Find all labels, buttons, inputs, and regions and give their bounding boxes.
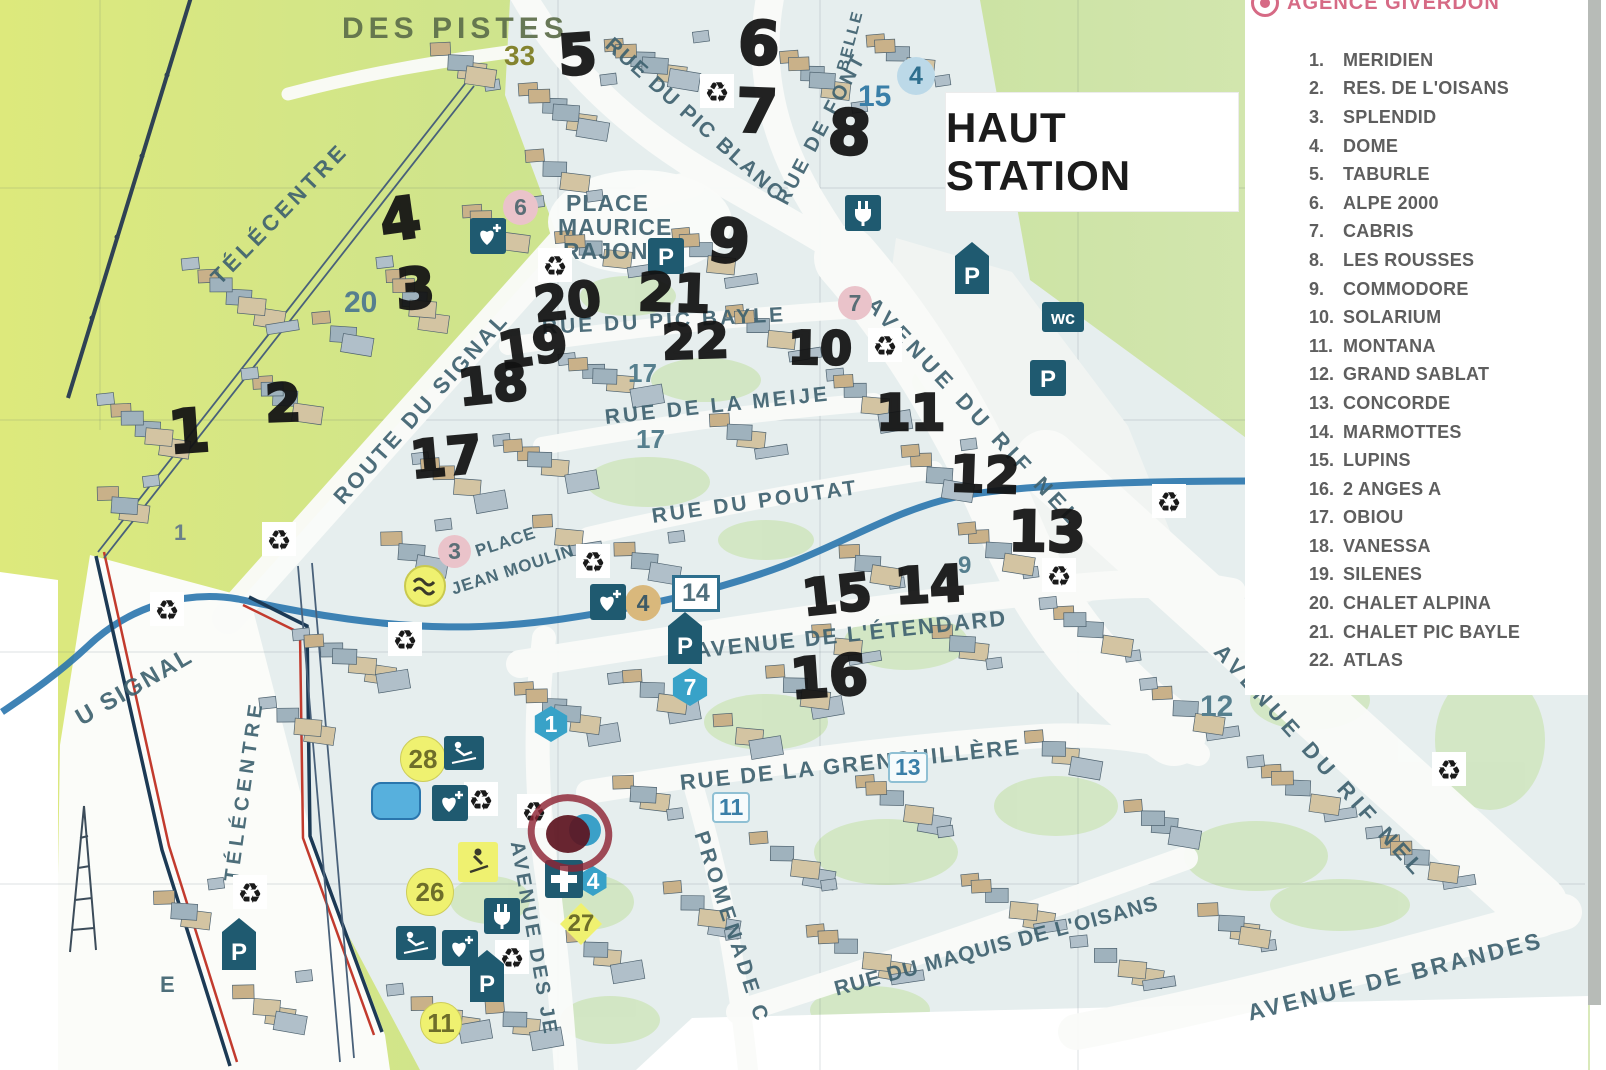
recycle-icon: ♻: [700, 74, 734, 113]
agency-target-logo-icon: [1251, 0, 1279, 17]
legend-item: 10.SOLARIUM: [1309, 303, 1520, 332]
handwritten-number: 2: [264, 377, 302, 430]
legend-item-name: CONCORDE: [1343, 393, 1450, 414]
legend-item-number: 14.: [1309, 422, 1343, 443]
map-ref-number: 17: [636, 424, 665, 455]
map-ref-number: 11: [420, 1002, 462, 1044]
legend-item: 2.RES. DE L'OISANS: [1309, 75, 1520, 104]
legend-item-name: MERIDIEN: [1343, 50, 1433, 71]
svg-text:P: P: [231, 939, 247, 966]
map-ref-number: 33: [504, 40, 535, 72]
parking-pillar-icon: P: [222, 918, 256, 977]
legend-item-name: TABURLE: [1343, 164, 1430, 185]
parking-pillar-icon: P: [955, 242, 989, 301]
legend-item-name: CHALET ALPINA: [1343, 593, 1491, 614]
recycle-icon: ♻: [150, 592, 184, 631]
map-ref-number: 4: [897, 57, 935, 95]
legend-item: 21.CHALET PIC BAYLE: [1309, 618, 1520, 647]
map-ref-number: 20: [344, 286, 377, 320]
legend-item-number: 6.: [1309, 193, 1343, 214]
parking-icon: P: [1030, 360, 1066, 401]
recycle-icon: ♻: [233, 875, 267, 914]
legend-item: 5.TABURLE: [1309, 160, 1520, 189]
parking-pillar-icon: P: [668, 612, 702, 671]
handwritten-number: 9: [705, 210, 752, 273]
handwritten-number: 13: [1008, 504, 1087, 561]
map-ref-number: 7: [838, 286, 872, 320]
handwritten-number: 11: [876, 388, 946, 438]
svg-text:♻: ♻: [1156, 486, 1181, 518]
svg-text:♻: ♻: [468, 784, 493, 816]
map-ref-number: 1: [174, 520, 186, 546]
legend-item-name: VANESSA: [1343, 536, 1431, 557]
map-ref-number: 17: [628, 358, 657, 389]
street-label: RAJON: [563, 238, 649, 265]
legend-item: 8.LES ROUSSES: [1309, 246, 1520, 275]
legend-item-number: 18.: [1309, 536, 1343, 557]
legend-item-name: RES. DE L'OISANS: [1343, 78, 1509, 99]
legend-item: 12.GRAND SABLAT: [1309, 361, 1520, 390]
plug-icon: [484, 898, 520, 939]
legend-item-number: 3.: [1309, 107, 1343, 128]
handwritten-number: 5: [556, 27, 599, 86]
map-ref-number: 6: [503, 190, 538, 225]
svg-text:♻: ♻: [872, 330, 897, 362]
legend-item-name: LES ROUSSES: [1343, 250, 1474, 271]
svg-text:P: P: [1040, 366, 1056, 393]
legend-item-name: SILENES: [1343, 564, 1422, 585]
street-label: PLACE: [566, 190, 649, 217]
legend-item-name: CHALET PIC BAYLE: [1343, 622, 1520, 643]
heart-icon: [442, 930, 478, 971]
plug-icon: [845, 195, 881, 236]
legend-item-name: MONTANA: [1343, 336, 1436, 357]
legend-item-number: 22.: [1309, 650, 1343, 671]
recycle-icon: ♻: [1152, 484, 1186, 523]
legend-item-name: ALPE 2000: [1343, 193, 1439, 214]
legend-item-number: 11.: [1309, 336, 1343, 357]
handwritten-number: 7: [735, 81, 779, 142]
svg-text:♻: ♻: [237, 877, 262, 909]
legend-list: 1.MERIDIEN2.RES. DE L'OISANS3.SPLENDID4.…: [1309, 46, 1520, 675]
svg-text:♻: ♻: [1436, 754, 1461, 786]
legend-item-name: DOME: [1343, 136, 1398, 157]
legend-item-name: LUPINS: [1343, 450, 1411, 471]
legend-item: 18.VANESSA: [1309, 532, 1520, 561]
wave-icon: [404, 565, 446, 612]
agency-name: AGENCE GIVERDON: [1287, 0, 1500, 15]
legend-item: 15.LUPINS: [1309, 446, 1520, 475]
legend-item-number: 1.: [1309, 50, 1343, 71]
handwritten-number: 15: [800, 566, 874, 623]
legend-item-number: 20.: [1309, 593, 1343, 614]
handwritten-number: 12: [949, 449, 1020, 501]
legend-item: 3.SPLENDID: [1309, 103, 1520, 132]
agency-header: AGENCE GIVERDON: [1251, 0, 1500, 17]
skier-icon: [396, 926, 436, 965]
svg-text:♻: ♻: [392, 624, 417, 656]
jump-icon: [458, 842, 498, 887]
legend-item-number: 4.: [1309, 136, 1343, 157]
recycle-icon: ♻: [1432, 752, 1466, 791]
legend-item-name: MARMOTTES: [1343, 422, 1462, 443]
legend-item-name: OBIOU: [1343, 507, 1404, 528]
svg-text:♻: ♻: [580, 546, 605, 578]
handwritten-number: 1: [166, 401, 212, 464]
recycle-icon: ♻: [464, 782, 498, 821]
legend-item-name: CABRIS: [1343, 221, 1414, 242]
recycle-icon: ♻: [262, 522, 296, 561]
handwritten-number: 6: [736, 13, 781, 75]
scan-edge: [1588, 0, 1601, 1005]
legend-item-number: 2.: [1309, 78, 1343, 99]
svg-text:♻: ♻: [704, 76, 729, 108]
recycle-icon: ♻: [388, 622, 422, 661]
legend-item-number: 9.: [1309, 279, 1343, 300]
street-label: MAURICE: [558, 214, 672, 241]
handwritten-number: 14: [894, 558, 966, 612]
wc-icon: wc: [1042, 302, 1084, 337]
legend-item: 22.ATLAS: [1309, 646, 1520, 675]
legend-item: 6.ALPE 2000: [1309, 189, 1520, 218]
svg-text:P: P: [479, 971, 495, 998]
legend-item: 7.CABRIS: [1309, 218, 1520, 247]
svg-text:wc: wc: [1050, 308, 1075, 328]
legend-item-number: 7.: [1309, 221, 1343, 242]
handwritten-number: 17: [408, 429, 485, 487]
svg-text:♻: ♻: [266, 524, 291, 556]
legend-item-name: SOLARIUM: [1343, 307, 1441, 328]
legend-item: 16.2 ANGES A: [1309, 475, 1520, 504]
legend-item: 9.COMMODORE: [1309, 275, 1520, 304]
map-ref-number: 28: [400, 736, 446, 782]
legend-item: 17.OBIOU: [1309, 504, 1520, 533]
map-title-box: HAUT STATION: [945, 92, 1239, 212]
legend-item-number: 21.: [1309, 622, 1343, 643]
legend-panel: AGENCE GIVERDON 1.MERIDIEN2.RES. DE L'OI…: [1245, 0, 1590, 695]
legend-item: 19.SILENES: [1309, 561, 1520, 590]
legend-item-number: 17.: [1309, 507, 1343, 528]
legend-item: 20.CHALET ALPINA: [1309, 589, 1520, 618]
legend-item-number: 13.: [1309, 393, 1343, 414]
legend-item-name: ATLAS: [1343, 650, 1403, 671]
map-ref-number: 11: [712, 792, 750, 823]
svg-text:P: P: [964, 263, 980, 290]
legend-item-number: 16.: [1309, 479, 1343, 500]
skier-icon: [444, 736, 484, 775]
map-ref-number: 3: [438, 535, 471, 568]
scanned-resort-map: DES PISTESTÉLÉCENTRETÉLÉCENTRERUE DU PIC…: [0, 0, 1606, 1070]
heart-icon: [590, 584, 626, 625]
legend-item: 14.MARMOTTES: [1309, 418, 1520, 447]
handwritten-number: 4: [376, 187, 424, 250]
heart-icon: [432, 785, 468, 826]
legend-item-name: SPLENDID: [1343, 107, 1436, 128]
legend-item-number: 8.: [1309, 250, 1343, 271]
heart-icon: [470, 218, 506, 259]
map-ref-number: 12: [1200, 690, 1233, 724]
map-ref-number: 14: [672, 575, 720, 612]
handwritten-number: 8: [826, 101, 873, 166]
legend-item: 13.CONCORDE: [1309, 389, 1520, 418]
handwritten-number: 20: [532, 275, 603, 330]
legend-item-number: 5.: [1309, 164, 1343, 185]
recycle-icon: ♻: [576, 544, 610, 583]
handwritten-number: 3: [395, 261, 437, 319]
legend-item-number: 19.: [1309, 564, 1343, 585]
handwritten-number: 16: [788, 647, 870, 708]
handwritten-number: 10: [788, 324, 853, 371]
map-ref-number: 26: [406, 868, 454, 916]
street-label: E: [160, 972, 175, 998]
svg-text:♻: ♻: [154, 594, 179, 626]
map-title: HAUT STATION: [946, 104, 1238, 200]
legend-item-number: 12.: [1309, 364, 1343, 385]
svg-text:P: P: [677, 633, 693, 660]
legend-item-name: COMMODORE: [1343, 279, 1469, 300]
legend-item-number: 15.: [1309, 450, 1343, 471]
legend-item-name: 2 ANGES A: [1343, 479, 1441, 500]
legend-item-number: 10.: [1309, 307, 1343, 328]
legend-item: 11.MONTANA: [1309, 332, 1520, 361]
map-ref-number: 4: [625, 585, 661, 621]
legend-item-name: GRAND SABLAT: [1343, 364, 1489, 385]
recycle-icon: ♻: [868, 328, 902, 367]
legend-item: 4.DOME: [1309, 132, 1520, 161]
map-ref-number: 13: [888, 752, 928, 783]
target-marker: [515, 778, 625, 893]
handwritten-number: 22: [661, 317, 729, 367]
legend-item: 1.MERIDIEN: [1309, 46, 1520, 75]
